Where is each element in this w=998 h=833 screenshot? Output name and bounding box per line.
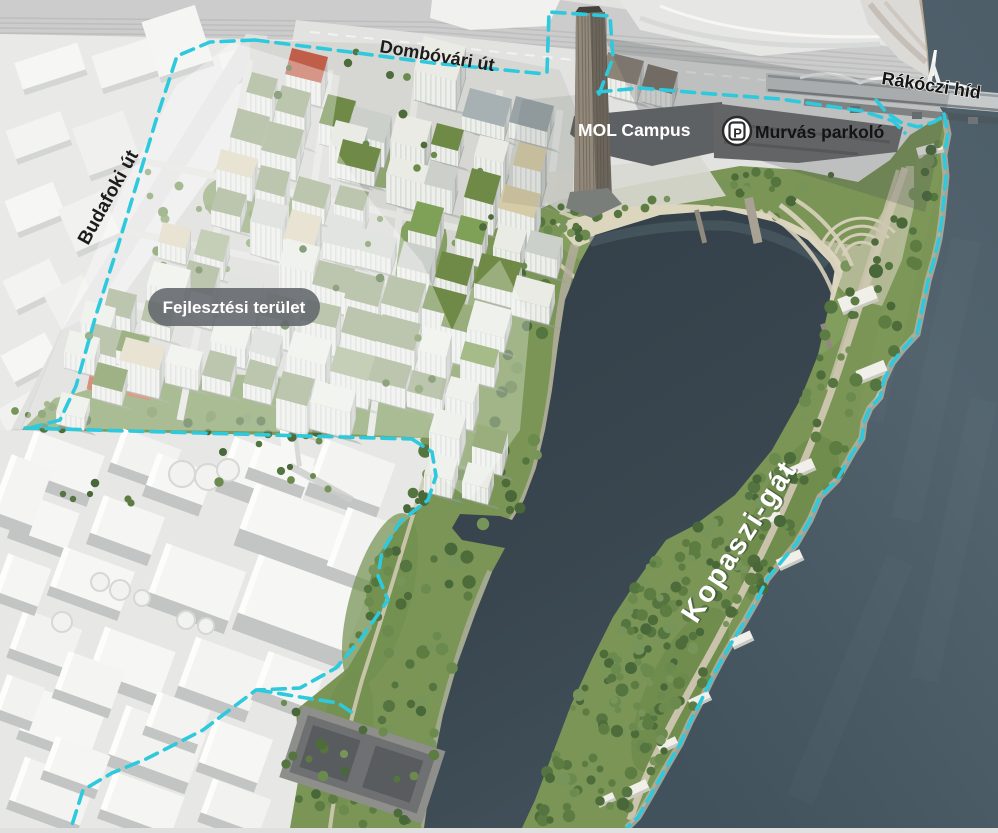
svg-text:Murvás parkoló: Murvás parkoló xyxy=(755,122,884,142)
svg-text:P: P xyxy=(733,126,742,141)
svg-text:Fejlesztési terület: Fejlesztési terület xyxy=(163,298,306,317)
svg-text:MOL Campus: MOL Campus xyxy=(578,120,691,140)
